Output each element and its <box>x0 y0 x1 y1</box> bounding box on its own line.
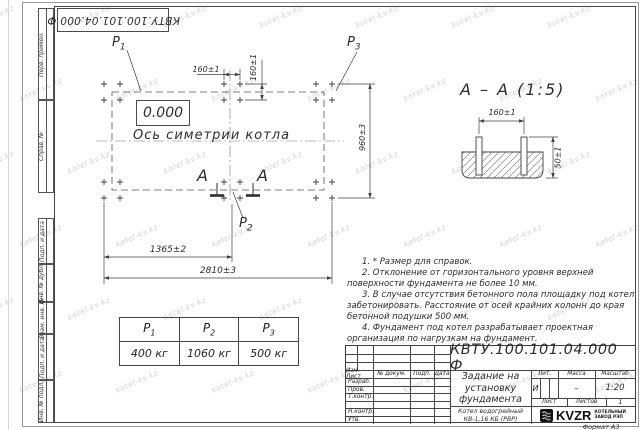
sign-row-nkontr: Н.контр. <box>346 408 373 416</box>
load-table-header: P3 <box>239 318 299 342</box>
section-cut-marks <box>210 183 260 196</box>
note-1: 1. * Размер для справок. <box>347 257 638 268</box>
note-2: 2. Отклонение от горизонтального уровня … <box>347 268 638 290</box>
sign-row-empty <box>346 401 373 408</box>
kvzr-logo: KVZR КОТЕЛЬНЫЙ ЗАВОД РЭП <box>531 406 635 424</box>
load-table-value: 400 кг <box>120 342 180 366</box>
section-view-title: А – А (1:5) <box>460 80 565 99</box>
mass-value: – <box>558 378 595 398</box>
dim-bottom-outer: 2810±3 <box>180 266 256 276</box>
lit-value: И <box>531 378 540 398</box>
sheet-label: Лист <box>531 398 567 406</box>
title-block-product: Котел водогрейный КВ-1,16 КБ (РВР) <box>450 407 531 424</box>
load-table-value: 1060 кг <box>179 342 239 366</box>
sign-row-razrab: Разраб. <box>346 378 373 386</box>
elevation-mark-box: 0.000 <box>136 100 190 126</box>
section-letter-right: А <box>257 166 268 185</box>
axis-of-symmetry-label: Ось симетрии котла <box>133 128 290 143</box>
title-block-title: Задание на установку фундамента <box>450 371 531 406</box>
section-dim-horizontal: 160±1 <box>479 108 525 117</box>
dim-right-vertical: 960±3 <box>343 132 383 142</box>
section-dim-vertical: 50±1 <box>538 152 578 162</box>
kvzr-logo-icon <box>540 409 553 422</box>
scale-header: Масштаб <box>595 370 635 378</box>
load-table-header: P2 <box>179 318 239 342</box>
anchor-bolt-right <box>521 137 527 175</box>
section-detail <box>462 117 558 178</box>
load-table-header-row: P1 P2 P3 <box>120 318 299 342</box>
dim-bottom-inner: 1365±2 <box>130 245 206 255</box>
plan-label-p2: P2 <box>239 216 253 234</box>
sign-row-tkontr: Т.контр. <box>346 393 373 401</box>
col-header-n-dokum: № докум. <box>373 370 410 378</box>
plan-label-p1: P1 <box>112 35 126 53</box>
anchor-bolt-left <box>476 137 482 175</box>
mass-header: Масса <box>558 370 595 378</box>
lit-header: Лит. <box>531 370 558 378</box>
sign-row-prov: Пров. <box>346 386 373 393</box>
drawing-sheet: kotel-kv.kzkotel-kv.kzkotel-kv.kzkotel-k… <box>0 0 644 430</box>
sign-row-utv: Утв. <box>346 416 373 424</box>
sheets-value: 1 <box>606 398 635 406</box>
load-table-value: 500 кг <box>239 342 299 366</box>
load-table-value-row: 400 кг 1060 кг 500 кг <box>120 342 299 366</box>
load-table: P1 P2 P3 400 кг 1060 кг 500 кг <box>119 317 299 366</box>
dim-top-horizontal: 160±1 <box>186 65 226 74</box>
format-label: Формат А3 <box>563 423 639 430</box>
plan-label-p3: P3 <box>347 35 361 53</box>
dim-top-vertical: 160±1 <box>234 62 274 72</box>
kvzr-logo-subline: ЗАВОД РЭП <box>594 415 626 420</box>
kvzr-logo-text: KVZR <box>556 408 591 423</box>
note-3: 3. В случае отсутствия бетонного пола пл… <box>347 290 638 323</box>
title-block: КВТУ.100.101.04.000 Ф Изм. Лист № докум.… <box>345 345 636 423</box>
section-letter-left: А <box>197 166 208 185</box>
elevation-mark: 0.000 <box>143 105 183 121</box>
col-header-data: Дата <box>434 370 450 378</box>
title-block-doc-number: КВТУ.100.101.04.000 Ф <box>450 346 635 370</box>
col-header-podp: Подп. <box>410 370 434 378</box>
load-table-header: P1 <box>120 318 180 342</box>
col-header-izm-list: Изм. Лист <box>346 370 373 378</box>
scale-value: 1:20 <box>595 378 635 398</box>
notes-block: 1. * Размер для справок. 2. Отклонение о… <box>347 257 638 345</box>
sheets-label: Листов <box>567 398 606 406</box>
